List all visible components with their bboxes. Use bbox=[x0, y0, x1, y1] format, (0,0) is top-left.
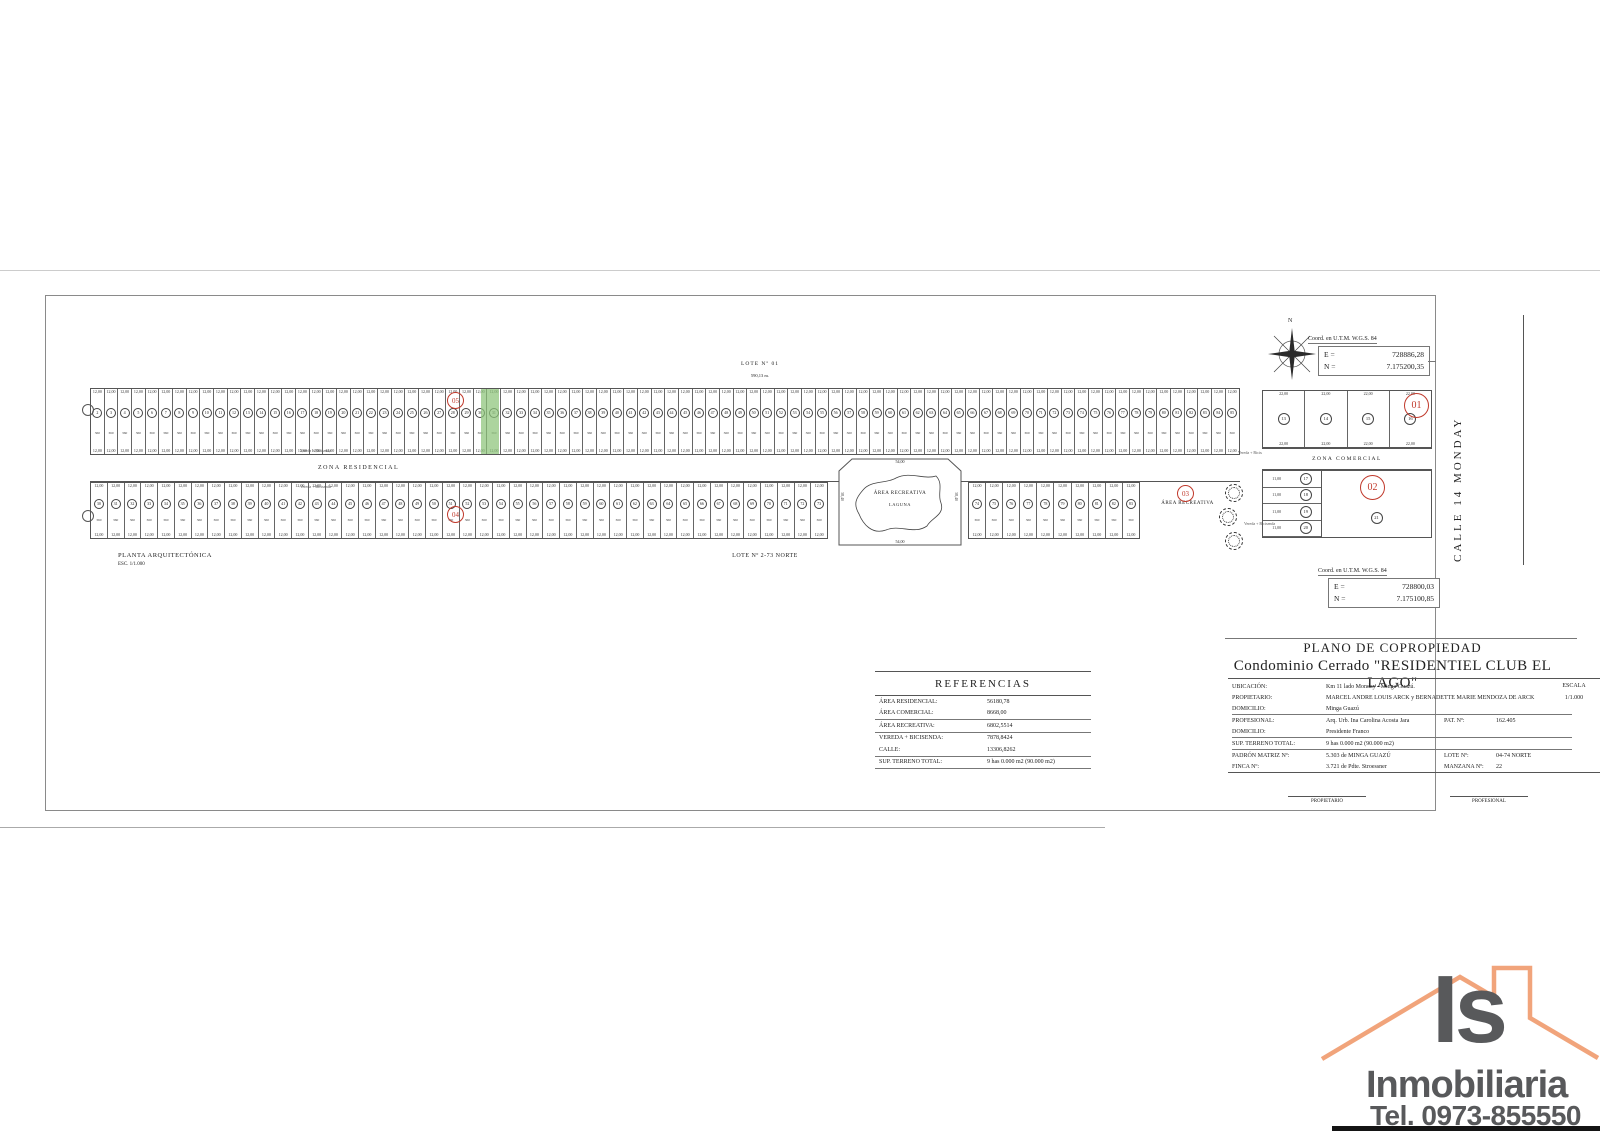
lot-width-label: 12,00 bbox=[776, 390, 785, 394]
lot-number: 76 bbox=[1104, 408, 1114, 418]
lot-number: 8 bbox=[174, 408, 184, 418]
lot-width-label: 12,00 bbox=[517, 449, 526, 453]
tree-icon bbox=[1219, 508, 1237, 526]
lot-row: 12,007436012,0012,007536012,0012,0076360… bbox=[968, 482, 1140, 539]
lot-width-label: 12,00 bbox=[111, 484, 120, 488]
lot-cell: 12,004236012,00 bbox=[638, 389, 652, 454]
recreation-dim-right: 38,40 bbox=[954, 492, 959, 501]
lot-cell: 12,005336012,00 bbox=[788, 389, 802, 454]
lot-number: 55 bbox=[817, 408, 827, 418]
lot-number: 61 bbox=[899, 408, 909, 418]
lot-area-label: 360 bbox=[1043, 519, 1048, 523]
lot-number: 27 bbox=[434, 408, 444, 418]
lot-cell: 12,006936012,00 bbox=[744, 483, 761, 538]
coord-e-label: E = bbox=[1334, 581, 1345, 593]
top-rule bbox=[0, 270, 1600, 271]
lot-number: 22 bbox=[366, 408, 376, 418]
referencias-rows: ÁREA RESIDENCIAL:56180,78ÁREA COMERCIAL:… bbox=[875, 695, 1091, 769]
lot-cell: 12,007636012,00 bbox=[1003, 483, 1020, 538]
lot-row: 12,00236012,0012,00336012,0012,00436012,… bbox=[90, 388, 1240, 455]
lot-cell: 12,004736012,00 bbox=[706, 389, 720, 454]
lot-cell: 12,004536012,00 bbox=[342, 483, 359, 538]
lot-area-label: 360 bbox=[465, 519, 470, 523]
lot-cell: 12,004136012,00 bbox=[275, 483, 292, 538]
lot-cell: 12,005836012,00 bbox=[857, 389, 871, 454]
titleblock-row-label: UBICACIÓN: bbox=[1232, 684, 1326, 690]
lot-width-label: 12,00 bbox=[175, 390, 184, 394]
lot-number: 62 bbox=[630, 499, 640, 509]
lot-width-label: 12,00 bbox=[1105, 390, 1114, 394]
lot-width-label: 12,00 bbox=[763, 390, 772, 394]
lot-area-label: 360 bbox=[190, 432, 195, 436]
lot-width-label: 12,00 bbox=[446, 533, 455, 537]
lot-number: 79 bbox=[1058, 499, 1068, 509]
lot-area-label: 360 bbox=[180, 519, 185, 523]
lot-number: 53 bbox=[790, 408, 800, 418]
lot-width-label: 12,00 bbox=[664, 484, 673, 488]
lot-cell: 12,007936012,00 bbox=[1144, 389, 1158, 454]
lot-width-label: 12,00 bbox=[530, 390, 539, 394]
commercial-side-lots: 11,001711,001811,001911,0020 bbox=[1263, 471, 1322, 537]
lot-area-label: 360 bbox=[649, 519, 654, 523]
lot-width-label: 12,00 bbox=[195, 484, 204, 488]
lot-width-label: 12,00 bbox=[626, 449, 635, 453]
lot-cell: 12,004336012,00 bbox=[309, 483, 326, 538]
lot-cell: 12,008436012,00 bbox=[1212, 389, 1226, 454]
coord-n-label: N = bbox=[1324, 361, 1336, 373]
titleblock-bottom-rule bbox=[1228, 772, 1600, 773]
lot-number: 49 bbox=[412, 499, 422, 509]
lot-area-label: 360 bbox=[1161, 432, 1166, 436]
lot-cell: 12,005636012,00 bbox=[829, 389, 843, 454]
lot-width-label: 12,00 bbox=[1023, 449, 1032, 453]
lot-width-label: 12,00 bbox=[845, 449, 854, 453]
vertex-marker-icon bbox=[82, 510, 94, 522]
lot-width-label: 12,00 bbox=[1228, 449, 1237, 453]
lot-area-label: 360 bbox=[587, 432, 592, 436]
lot-width-label: 12,00 bbox=[735, 449, 744, 453]
lot-number: 58 bbox=[563, 499, 573, 509]
lot-cell: 12,004636012,00 bbox=[693, 389, 707, 454]
lot-number: 78 bbox=[1040, 499, 1050, 509]
lot-cell: 12,001736012,00 bbox=[296, 389, 310, 454]
lot-width-label: 12,00 bbox=[435, 449, 444, 453]
lot-cell: 12,00936012,00 bbox=[187, 389, 201, 454]
lot-area-label: 360 bbox=[819, 432, 824, 436]
lot-width-label: 12,00 bbox=[1214, 449, 1223, 453]
lot-width-label: 12,00 bbox=[653, 449, 662, 453]
lot-number: 57 bbox=[546, 499, 556, 509]
lot-number: 13 bbox=[243, 408, 253, 418]
lot-area-label: 360 bbox=[683, 432, 688, 436]
lot-area-label: 360 bbox=[245, 432, 250, 436]
referencias-row: VEREDA + BICISENDA:7878,8424 bbox=[875, 733, 1091, 745]
lot-width-label: 12,00 bbox=[940, 449, 949, 453]
lot-width-label: 12,00 bbox=[161, 390, 170, 394]
lot-width-label: 12,00 bbox=[1075, 533, 1084, 537]
lot-number: 66 bbox=[697, 499, 707, 509]
lot-dim-label: 22,00 bbox=[1364, 392, 1373, 396]
lot-number: 11 bbox=[215, 408, 225, 418]
lot-number: 69 bbox=[1008, 408, 1018, 418]
lot-number: 28 bbox=[448, 408, 458, 418]
north-lot-label: LOTE Nº 01 bbox=[700, 361, 820, 367]
lot-width-label: 12,00 bbox=[1075, 484, 1084, 488]
lot-width-label: 12,00 bbox=[480, 533, 489, 537]
lot-area-label: 360 bbox=[1026, 519, 1031, 523]
lot-area-label: 360 bbox=[354, 432, 359, 436]
coord-title-bottom: Coord. en U.T.M. W.G.S. 84 bbox=[1318, 568, 1387, 576]
lot-cell: 12,006636012,00 bbox=[966, 389, 980, 454]
lot-cell: 12,005936012,00 bbox=[870, 389, 884, 454]
lot-width-label: 12,00 bbox=[815, 533, 824, 537]
lot-dim-label: 22,00 bbox=[1279, 442, 1288, 446]
lot-cell: 12,007036012,00 bbox=[1021, 389, 1035, 454]
lot-area-label: 360 bbox=[710, 432, 715, 436]
lot-area-label: 360 bbox=[792, 432, 797, 436]
lot-width-label: 12,00 bbox=[798, 484, 807, 488]
lot-number: 34 bbox=[161, 499, 171, 509]
lot-width-label: 12,00 bbox=[653, 390, 662, 394]
titleblock-row-value: Arq. Urb. Ina Carolina Acosta Jara bbox=[1326, 718, 1444, 724]
lot-width-label: 12,00 bbox=[145, 533, 154, 537]
lot-width-label: 12,00 bbox=[448, 449, 457, 453]
lot-width-label: 12,00 bbox=[230, 449, 239, 453]
lot-number: 33 bbox=[516, 408, 526, 418]
lot-number: 45 bbox=[680, 408, 690, 418]
lot-cell: 12,006836012,00 bbox=[728, 483, 745, 538]
lot-cell: 12,004836012,00 bbox=[720, 389, 734, 454]
lot-area-label: 360 bbox=[464, 432, 469, 436]
lot-width-label: 12,00 bbox=[161, 533, 170, 537]
lot-width-label: 12,00 bbox=[421, 390, 430, 394]
lot-cell: 12,007636012,00 bbox=[1103, 389, 1117, 454]
lot-width-label: 12,00 bbox=[995, 390, 1004, 394]
lot-dim-label: 11,00 bbox=[1272, 510, 1281, 514]
lot-area-label: 360 bbox=[382, 432, 387, 436]
lot-width-label: 12,00 bbox=[681, 484, 690, 488]
lot-number: 60 bbox=[885, 408, 895, 418]
titleblock-row-label: PADRÓN MATRIZ Nº: bbox=[1232, 753, 1326, 759]
professional-signature-label: PROFESIONAL bbox=[1450, 799, 1528, 804]
lot-width-label: 12,00 bbox=[178, 484, 187, 488]
lot-width-label: 12,00 bbox=[1132, 390, 1141, 394]
lot-cell: 12,00436012,00 bbox=[118, 389, 132, 454]
lot-width-label: 12,00 bbox=[1024, 484, 1033, 488]
lot-cell: 12,008236012,00 bbox=[1106, 483, 1123, 538]
lot-number: 4 bbox=[120, 408, 130, 418]
lot-number: 42 bbox=[295, 499, 305, 509]
highlighted-lot[interactable] bbox=[481, 389, 499, 454]
referencias-row: ÁREA COMERCIAL:8668,00 bbox=[875, 708, 1091, 721]
commercial-lot: 22,001522,00 bbox=[1348, 391, 1390, 447]
lot-number: 10 bbox=[202, 408, 212, 418]
lot-number: 48 bbox=[721, 408, 731, 418]
lot-area-label: 360 bbox=[313, 432, 318, 436]
lot-area-label: 360 bbox=[130, 519, 135, 523]
lot-width-label: 12,00 bbox=[764, 533, 773, 537]
lot-width-label: 12,00 bbox=[630, 533, 639, 537]
recreation-dim-top: 54,00 bbox=[868, 459, 932, 464]
lot-width-label: 12,00 bbox=[463, 533, 472, 537]
lot-number: 43 bbox=[312, 499, 322, 509]
lot-number: 72 bbox=[797, 499, 807, 509]
compass-north-label: N bbox=[1288, 318, 1292, 324]
lot-width-label: 12,00 bbox=[178, 533, 187, 537]
lot-cell: 12,00736012,00 bbox=[159, 389, 173, 454]
top-dimension-label: 590,13 m. bbox=[700, 373, 820, 378]
lot-width-label: 12,00 bbox=[599, 449, 608, 453]
lot-width-label: 12,00 bbox=[1092, 484, 1101, 488]
lot-number: 16 bbox=[284, 408, 294, 418]
lot-cell: 12,007936012,00 bbox=[1054, 483, 1071, 538]
lot-width-label: 12,00 bbox=[262, 533, 271, 537]
lot-number: 12 bbox=[229, 408, 239, 418]
coord-e-value: 728800,03 bbox=[1402, 581, 1434, 593]
lot-cell: 12,003336012,00 bbox=[515, 389, 529, 454]
lot-width-label: 12,00 bbox=[462, 449, 471, 453]
lot-width-label: 12,00 bbox=[189, 390, 198, 394]
lot-width-label: 12,00 bbox=[781, 484, 790, 488]
lot-width-label: 12,00 bbox=[982, 390, 991, 394]
lot-width-label: 12,00 bbox=[394, 449, 403, 453]
lot-width-label: 12,00 bbox=[697, 533, 706, 537]
plan-scale: ESC. 1/1.000 bbox=[118, 562, 145, 567]
lot-cell: 12,005036012,00 bbox=[426, 483, 443, 538]
lot-width-label: 12,00 bbox=[362, 533, 371, 537]
lot-area-label: 360 bbox=[113, 519, 118, 523]
lot-cell: 12,00536012,00 bbox=[132, 389, 146, 454]
lot-width-label: 12,00 bbox=[815, 484, 824, 488]
lot-width-label: 12,00 bbox=[995, 449, 1004, 453]
commercial-street-label: ZONA COMERCIAL bbox=[1312, 456, 1382, 462]
lot-number: 3 bbox=[106, 408, 116, 418]
titleblock-rows: UBICACIÓN:Km 11 lado Monday - Minga Guaz… bbox=[1232, 681, 1572, 773]
lot-width-label: 12,00 bbox=[195, 533, 204, 537]
lot-number: 73 bbox=[814, 499, 824, 509]
coord-n-value: 7.175200,35 bbox=[1387, 361, 1425, 373]
lot-width-label: 12,00 bbox=[295, 533, 304, 537]
lot-number: 19 bbox=[1300, 506, 1312, 518]
lot-width-label: 12,00 bbox=[954, 390, 963, 394]
lot-area-label: 360 bbox=[149, 432, 154, 436]
titleblock-row-label: DOMICILIO: bbox=[1232, 706, 1326, 712]
lot-width-label: 12,00 bbox=[1077, 390, 1086, 394]
lot-area-label: 360 bbox=[1134, 432, 1139, 436]
lot-width-label: 12,00 bbox=[353, 390, 362, 394]
lot-area-label: 360 bbox=[136, 432, 141, 436]
lot-number: 64 bbox=[940, 408, 950, 418]
lot-number: 41 bbox=[626, 408, 636, 418]
lot-number: 83 bbox=[1126, 499, 1136, 509]
lot-width-label: 12,00 bbox=[913, 449, 922, 453]
lot-cell: 12,00636012,00 bbox=[146, 389, 160, 454]
lot-cell: 12,007736012,00 bbox=[1020, 483, 1037, 538]
lot-width-label: 12,00 bbox=[257, 390, 266, 394]
lot-area-label: 360 bbox=[264, 519, 269, 523]
coord-title-top: Coord. en U.T.M. W.G.S. 84 bbox=[1308, 336, 1377, 344]
lot-area-label: 360 bbox=[1147, 432, 1152, 436]
referencias-row-label: CALLE: bbox=[875, 747, 987, 753]
lot-number: 68 bbox=[730, 499, 740, 509]
lot-cell: 12,003736012,00 bbox=[570, 389, 584, 454]
lot-number: 18 bbox=[311, 408, 321, 418]
lot-width-label: 12,00 bbox=[667, 390, 676, 394]
lot-width-label: 12,00 bbox=[111, 533, 120, 537]
lot-width-label: 12,00 bbox=[1007, 533, 1016, 537]
lot-area-label: 360 bbox=[423, 432, 428, 436]
lot-width-label: 12,00 bbox=[1007, 484, 1016, 488]
lot-cell: 12,004936012,00 bbox=[734, 389, 748, 454]
lot-width-label: 12,00 bbox=[94, 484, 103, 488]
lot-cell: 12,007136012,00 bbox=[778, 483, 795, 538]
lot-number: 80 bbox=[1075, 499, 1085, 509]
lot-area-label: 360 bbox=[368, 432, 373, 436]
lot-cell: 12,006936012,00 bbox=[1007, 389, 1021, 454]
lot-width-label: 12,00 bbox=[1228, 390, 1237, 394]
titleblock-row: DOMICILIO:Presidente Franco bbox=[1232, 726, 1572, 738]
lot-width-label: 12,00 bbox=[681, 390, 690, 394]
zone-marker-03: 03 bbox=[1177, 485, 1194, 502]
lot-cell: 12,005636012,00 bbox=[527, 483, 544, 538]
lot-area-label: 360 bbox=[197, 519, 202, 523]
lot-width-label: 12,00 bbox=[394, 390, 403, 394]
lot-cell: 12,006536012,00 bbox=[677, 483, 694, 538]
zone-marker-05: 05 bbox=[447, 392, 464, 409]
lot-width-label: 12,00 bbox=[1109, 484, 1118, 488]
lot-area-label: 360 bbox=[163, 432, 168, 436]
lot-number: 25 bbox=[407, 408, 417, 418]
lot-width-label: 12,00 bbox=[708, 449, 717, 453]
lot-cell: 12,003136012,00 bbox=[108, 483, 125, 538]
lot-width-label: 12,00 bbox=[517, 390, 526, 394]
lot-cell: 12,003536012,00 bbox=[542, 389, 556, 454]
lot-area-label: 360 bbox=[1120, 432, 1125, 436]
lot-width-label: 12,00 bbox=[93, 390, 102, 394]
lot-cell: 12,004936012,00 bbox=[409, 483, 426, 538]
lot-cell: 12,005836012,00 bbox=[560, 483, 577, 538]
lot-cell: 12,00236012,00 bbox=[91, 389, 105, 454]
street-right-label: CALLE 14 MONDAY bbox=[1452, 372, 1464, 562]
lot-dim-label: 11,00 bbox=[1272, 526, 1281, 530]
lot-width-label: 12,00 bbox=[93, 449, 102, 453]
lot-number: 5 bbox=[133, 408, 143, 418]
lot-cell: 12,007736012,00 bbox=[1116, 389, 1130, 454]
lot-dim-label: 22,00 bbox=[1279, 392, 1288, 396]
lot-cell: 12,006136012,00 bbox=[898, 389, 912, 454]
referencias-row: CALLE:13306,8262 bbox=[875, 744, 1091, 757]
lot-number: 59 bbox=[872, 408, 882, 418]
lot-width-label: 12,00 bbox=[279, 484, 288, 488]
lot-area-label: 360 bbox=[616, 519, 621, 523]
lot-cell: 12,007336012,00 bbox=[1062, 389, 1076, 454]
referencias-row-label: ÁREA COMERCIAL: bbox=[875, 710, 987, 716]
lot-width-label: 12,00 bbox=[421, 449, 430, 453]
lot-width-label: 12,00 bbox=[990, 484, 999, 488]
referencias-row-label: SUP. TERRENO TOTAL: bbox=[875, 759, 987, 765]
lot-number: 38 bbox=[228, 499, 238, 509]
lot-number: 80 bbox=[1159, 408, 1169, 418]
lot-width-label: 12,00 bbox=[1064, 390, 1073, 394]
lot-number: 51 bbox=[762, 408, 772, 418]
lot-width-label: 12,00 bbox=[708, 390, 717, 394]
lot-number: 48 bbox=[395, 499, 405, 509]
lot-width-label: 12,00 bbox=[781, 533, 790, 537]
lot-number: 30 bbox=[94, 499, 104, 509]
lot-width-label: 12,00 bbox=[216, 449, 225, 453]
lot-number: 52 bbox=[462, 499, 472, 509]
lot-cell: 12,002536012,00 bbox=[405, 389, 419, 454]
lot-cell: 12,005536012,00 bbox=[816, 389, 830, 454]
lot-number: 17 bbox=[297, 408, 307, 418]
titleblock-header-rule bbox=[1228, 678, 1600, 679]
lot-area-label: 360 bbox=[737, 432, 742, 436]
lot-width-label: 12,00 bbox=[94, 533, 103, 537]
lot-width-label: 12,00 bbox=[189, 449, 198, 453]
lot-area-label: 360 bbox=[1060, 519, 1065, 523]
lot-width-label: 12,00 bbox=[681, 533, 690, 537]
lot-width-label: 12,00 bbox=[245, 484, 254, 488]
lot-number: 47 bbox=[379, 499, 389, 509]
lot-cell: 12,00336012,00 bbox=[105, 389, 119, 454]
lot-cell: 12,006736012,00 bbox=[980, 389, 994, 454]
lot-cell: 12,007336012,00 bbox=[811, 483, 827, 538]
lot-number: 9 bbox=[188, 408, 198, 418]
lot-cell: 12,003836012,00 bbox=[225, 483, 242, 538]
lot-area-label: 360 bbox=[515, 519, 520, 523]
lot-width-label: 12,00 bbox=[175, 449, 184, 453]
referencias-row-value: 13306,8262 bbox=[987, 747, 1016, 753]
lot-width-label: 12,00 bbox=[120, 449, 129, 453]
lot-area-label: 360 bbox=[122, 432, 127, 436]
lot-width-label: 12,00 bbox=[243, 449, 252, 453]
titleblock-title: PLANO DE COPROPIEDAD bbox=[1220, 628, 1565, 656]
titleblock-row-label: PROPIETARIO: bbox=[1232, 695, 1326, 701]
lot-area-label: 360 bbox=[381, 519, 386, 523]
lot-number: 63 bbox=[926, 408, 936, 418]
titleblock-row-label2: LOTE Nº: bbox=[1444, 753, 1496, 759]
lot-cell: 12,003536012,00 bbox=[175, 483, 192, 538]
lot-cell: 12,005436012,00 bbox=[802, 389, 816, 454]
lot-width-label: 12,00 bbox=[413, 533, 422, 537]
lot-number: 14 bbox=[1320, 413, 1332, 425]
lagoon-label: LAGUNA bbox=[860, 502, 940, 507]
lot-width-label: 12,00 bbox=[612, 449, 621, 453]
coord-e-value: 728886,28 bbox=[1392, 349, 1424, 361]
lot-area-label: 360 bbox=[163, 519, 168, 523]
lot-cell: 12,007836012,00 bbox=[1130, 389, 1144, 454]
lot-width-label: 12,00 bbox=[1159, 390, 1168, 394]
lot-number: 40 bbox=[612, 408, 622, 418]
lot-width-label: 12,00 bbox=[257, 449, 266, 453]
lot-cell: 12,007536012,00 bbox=[1089, 389, 1103, 454]
lot-cell: 12,006136012,00 bbox=[610, 483, 627, 538]
lot-width-label: 12,00 bbox=[982, 449, 991, 453]
lot-width-label: 12,00 bbox=[513, 484, 522, 488]
lot-width-label: 12,00 bbox=[1187, 390, 1196, 394]
lot-number: 37 bbox=[211, 499, 221, 509]
referencias-title: REFERENCIAS bbox=[875, 672, 1091, 695]
lot-number: 55 bbox=[513, 499, 523, 509]
lot-area-label: 360 bbox=[95, 432, 100, 436]
lot-number: 84 bbox=[1213, 408, 1223, 418]
lot-width-label: 12,00 bbox=[804, 390, 813, 394]
lot-width-label: 12,00 bbox=[407, 449, 416, 453]
lot-cell: 12,002736012,00 bbox=[433, 389, 447, 454]
lot-width-label: 12,00 bbox=[614, 533, 623, 537]
lot-width-label: 12,00 bbox=[128, 533, 137, 537]
lot-width-label: 12,00 bbox=[626, 390, 635, 394]
